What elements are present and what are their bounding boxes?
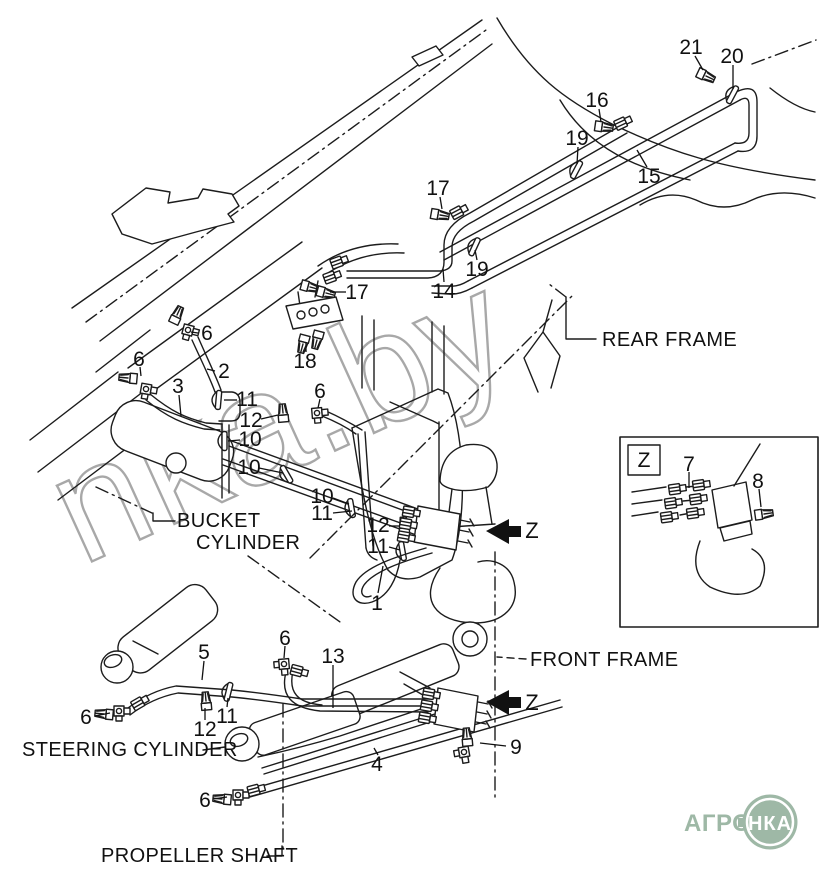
detail-box-label: Z (638, 449, 651, 472)
agronka-logo: АГРО НКА (684, 795, 798, 850)
callout-4: 4 (371, 753, 383, 776)
callout-leader-9 (480, 743, 506, 746)
bolt-icon (696, 68, 717, 85)
callout-12: 12 (193, 718, 216, 741)
callout-8: 8 (752, 470, 764, 493)
union-icon (130, 694, 150, 711)
callout-7: 7 (683, 453, 695, 476)
callout-19: 19 (565, 127, 588, 150)
label-steering-cylinder: STEERING CYLINDER (22, 739, 238, 761)
union-icon (247, 783, 266, 797)
elbow-icon (114, 706, 130, 721)
label-rear-frame: REAR FRAME (602, 329, 737, 351)
callout-21: 21 (679, 36, 702, 59)
callout-12: 12 (366, 514, 389, 537)
callout-15: 15 (637, 165, 660, 188)
callout-6: 6 (279, 627, 291, 650)
callout-11: 11 (216, 705, 238, 728)
callout-6: 6 (80, 706, 92, 729)
logo-badge-text: НКА (748, 813, 792, 835)
callout-9: 9 (510, 736, 522, 759)
callout-16: 16 (585, 89, 608, 112)
union-icon (449, 203, 469, 220)
callout-6: 6 (199, 789, 211, 812)
elbow-icon (453, 746, 471, 764)
union-icon (323, 269, 342, 284)
callout-11: 11 (236, 388, 258, 411)
callout-leader-1 (378, 566, 383, 593)
label-bucket-cylinder-2: CYLINDER (196, 532, 300, 554)
label-bucket-cylinder-1: BUCKET (177, 510, 261, 532)
clamp-icon (394, 541, 406, 561)
callout-11: 11 (311, 502, 333, 525)
callout-17: 17 (426, 177, 449, 200)
callout-19: 19 (465, 258, 488, 281)
callout-14: 14 (432, 280, 456, 303)
union-icon (614, 114, 634, 130)
view-arrow-label: Z (525, 690, 538, 715)
callout-leader-11 (389, 547, 400, 550)
parts-diagram-page: nka.by (0, 0, 820, 876)
hose-1 (353, 548, 432, 603)
callout-11: 11 (367, 535, 389, 558)
callout-2: 2 (218, 360, 230, 383)
callout-17: 17 (345, 281, 368, 304)
callout-6: 6 (201, 322, 213, 345)
union-icon (399, 518, 417, 531)
callout-20: 20 (720, 45, 743, 68)
union-icon (290, 664, 309, 678)
elbow-icon (233, 790, 249, 805)
label-propeller-shaft: PROPELLER SHAFT (101, 845, 298, 867)
callout-18: 18 (293, 350, 316, 373)
bolt-icon (200, 692, 212, 711)
bottom-assembly (95, 579, 562, 805)
bolt-icon (169, 305, 186, 326)
center-valve-block (397, 506, 474, 550)
clamp-icon (220, 681, 233, 702)
clamp-icon (343, 498, 355, 518)
union-icon (397, 531, 415, 544)
view-arrow-label: Z (525, 518, 538, 543)
bolt-icon (430, 209, 449, 222)
callout-1: 1 (371, 592, 383, 615)
bolt-icon (119, 372, 138, 384)
label-front-frame: FRONT FRAME (530, 649, 678, 671)
callout-13: 13 (321, 645, 344, 668)
view-arrow-z-icon (486, 690, 521, 715)
callout-10: 10 (237, 456, 260, 479)
elbow-icon (274, 659, 290, 676)
union-icon (330, 254, 349, 269)
callout-6: 6 (133, 348, 145, 371)
callout-6: 6 (314, 380, 326, 403)
callout-10: 10 (238, 428, 261, 451)
callout-5: 5 (198, 641, 210, 664)
callout-3: 3 (172, 375, 184, 398)
top-pipe-assembly (300, 68, 757, 300)
